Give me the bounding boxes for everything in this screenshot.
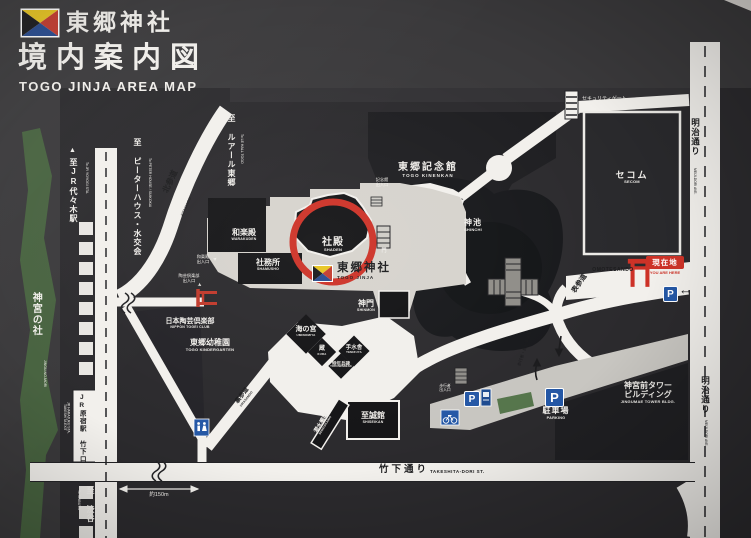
label-jingu-mori: 神宮の社 xyxy=(30,292,41,336)
parking-icon-main: P xyxy=(545,388,564,407)
label-distance-150m: 約150m xyxy=(149,492,168,498)
label-to-peter-house-en: To PETER HOUSE / SUIKOKAI xyxy=(147,158,151,207)
label-secom: セコム SECOM xyxy=(615,170,648,185)
building-warakuden xyxy=(208,198,266,252)
label-tokunenhei: 特年兵碑 TOKUNENHEIHI xyxy=(330,361,351,369)
label-kinenkan: 東郷記念館 TOGO KINENKAN xyxy=(398,162,458,178)
page-subtitle: TOGO JINJA AREA MAP xyxy=(19,80,198,95)
label-to-yoyogi: 至JR代々木駅 xyxy=(68,158,77,223)
shrine-area-map-board: 東郷神社 境内案内図 TOGO JINJA AREA MAP 神宮の社 JING… xyxy=(0,0,751,538)
arrow-left-parking: ← xyxy=(679,283,692,298)
label-shinmon: 神門 SHINMON xyxy=(357,300,375,313)
yoyogi-arrow: ▲ xyxy=(69,147,76,155)
label-meiji-dori-upper-en: MEIJI-DORI AVE. xyxy=(692,168,696,195)
label-to-peter-house: 至 ピーターハウス・水交会 xyxy=(132,138,141,256)
gate-mon-icon xyxy=(377,226,390,248)
you-are-here-badge: 現在地 xyxy=(646,256,684,269)
label-togei-entrance: 陶芸倶楽部 出入口 xyxy=(179,274,200,283)
label-shinchi: 神池 SHINCHI xyxy=(464,219,482,232)
label-security-gate: セキュリティゲート xyxy=(582,97,627,103)
label-warakuden: 和楽殿 WARAKUDEN xyxy=(232,229,257,242)
label-kindergarten: 東郷幼稚園 TOGO KINDERGARTEN xyxy=(186,339,234,352)
security-gate-icon xyxy=(565,91,578,119)
toilet-icon xyxy=(194,419,209,436)
label-meiji-dori-lower: 明治通り xyxy=(700,376,710,414)
label-meiji-dori-upper: 明治通り xyxy=(690,118,700,156)
label-parking: 駐車場 PARKING xyxy=(543,407,570,420)
label-kinenkan-entrance: 記念館 出入口 xyxy=(376,178,389,187)
bicycle-icon xyxy=(441,410,459,425)
label-kura: 蔵 KURA xyxy=(318,346,327,356)
label-harajuku-station: JR原宿駅 竹下口 xyxy=(78,394,85,463)
label-uminomiya: 海の宮 UMINOMIYA xyxy=(296,326,317,337)
label-mon: 門 xyxy=(381,249,386,255)
label-jingu-mori-en: JINGU-NO-MORI xyxy=(42,360,46,387)
label-takeshita-jp: 竹下通り xyxy=(379,465,429,476)
shrine-name: 東郷神社 xyxy=(66,10,174,36)
z-flag-icon-map xyxy=(312,265,333,282)
label-omotesando-en: OMOTESANDO xyxy=(592,268,633,274)
kinenkan-entrance-icon xyxy=(371,197,382,206)
parking-meter-icon xyxy=(481,389,491,406)
label-jingumae-tower: 神宮前タワー ビルディング JINGUMAE TOWER BLDG. xyxy=(621,382,676,404)
parking-icon-small: P xyxy=(464,391,480,407)
label-to-shibuya: 至 渋谷 xyxy=(85,486,94,523)
building-shinmon xyxy=(379,291,409,318)
parking-icon-omotesando: P xyxy=(663,286,678,302)
label-temizuya: 手水舎 TEMIZUYA xyxy=(346,345,363,354)
label-to-yoyogi-en: To JR YOYOGI STA. xyxy=(84,162,88,194)
label-to-le-hall: 至 ルアール東郷 xyxy=(226,114,235,187)
label-togei-club: 日本陶芸倶楽部 NIPPON TOGEI CLUB xyxy=(166,318,215,330)
page-title: 境内案内図 xyxy=(18,42,208,74)
label-pedestrian-entrance: 歩行者 出入口 xyxy=(439,384,450,393)
label-takeshita-en: TAKESHITA-DORI ST. xyxy=(430,469,485,474)
you-are-here-en: YOU ARE HERE xyxy=(650,271,680,275)
label-shamusho: 社務所 SHAMUSHO xyxy=(256,259,280,272)
label-togo-jinja: 東郷神社 TOGO JINJA xyxy=(337,262,391,280)
label-shaden: 社殿 SHADEN xyxy=(322,237,344,253)
label-meiji-dori-lower-en: MEIJI-DORI AVE. xyxy=(703,420,707,447)
label-harajuku-station-en: JR HARAJUKU STA. TAKESHITA EXIT xyxy=(62,402,70,434)
label-to-le-hall-en: To LE HALL TOGO xyxy=(239,134,243,164)
label-to-shibuya-en: To SHIBUYA xyxy=(76,490,80,510)
stairs-small xyxy=(455,368,467,384)
label-shiseikan: 至誠館 SHISEIKAN xyxy=(361,412,385,425)
road-takeshita-dori xyxy=(30,462,695,482)
z-flag-icon-header xyxy=(21,9,60,38)
label-warakuden-entrance: 和楽殿 出入口 xyxy=(197,255,210,264)
